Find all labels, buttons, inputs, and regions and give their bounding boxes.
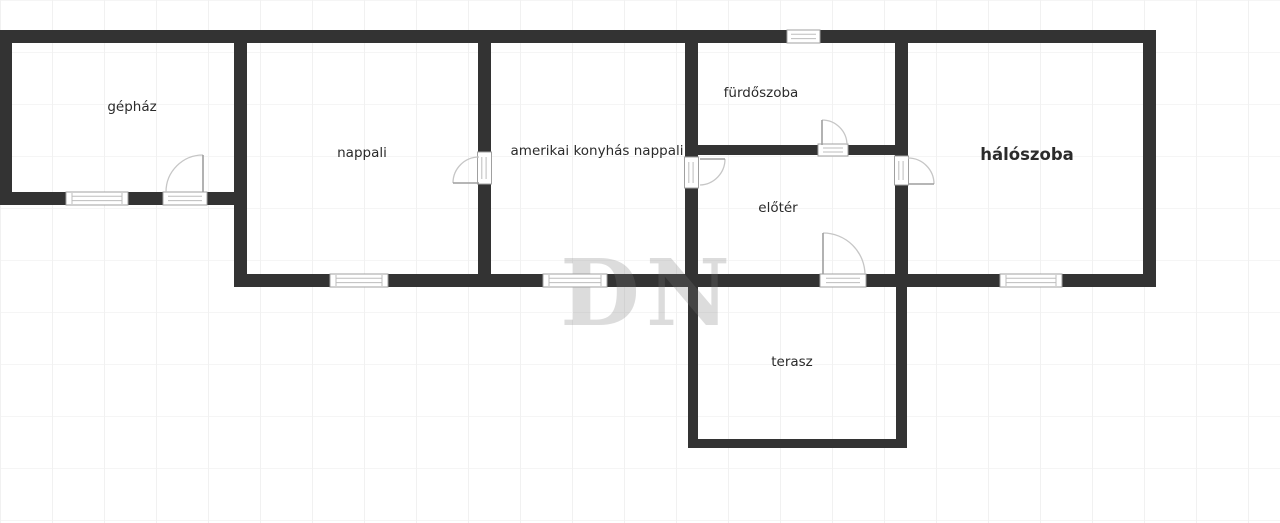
room-label-furdoszoba: fürdőszoba (724, 85, 799, 101)
wall-furdoszoba-eloter (698, 145, 895, 155)
floor-plan-drawing: DN (0, 0, 1280, 523)
door-icon-eloter-haloszoba (895, 156, 935, 185)
room-label-terasz: terasz (771, 354, 813, 370)
wall-gephaz-nappali (234, 30, 247, 287)
room-label-eloter: előtér (758, 200, 798, 216)
window-icon-gephaz (66, 192, 128, 205)
room-label-amerikai-konyhas-nappali: amerikai konyhás nappali (511, 143, 684, 159)
door-icon-amerikai-eloter (685, 157, 726, 188)
window-icon-amerikai (543, 274, 607, 287)
watermark-text: DN (560, 239, 736, 347)
wall-terasz-bottom (688, 439, 907, 448)
door-icon-gephaz (163, 155, 207, 205)
floor-plan-canvas: DN (0, 0, 1280, 523)
room-label-haloszoba: hálószoba (980, 145, 1074, 164)
door-icon-nappali-amerikai (453, 152, 492, 184)
wall-top (0, 30, 1156, 43)
wall-left (0, 30, 12, 205)
door-icon-eloter-terasz (820, 233, 866, 287)
room-label-nappali: nappali (337, 145, 387, 161)
wall-right (1143, 30, 1156, 287)
window-icon-haloszoba (1000, 274, 1062, 287)
window-icon-furdoszoba-top (787, 30, 820, 43)
wall-terasz-right (896, 287, 907, 448)
room-label-gephaz: gépház (107, 99, 156, 115)
window-icon-nappali (330, 274, 388, 287)
door-icon-furdoszoba (818, 120, 848, 156)
